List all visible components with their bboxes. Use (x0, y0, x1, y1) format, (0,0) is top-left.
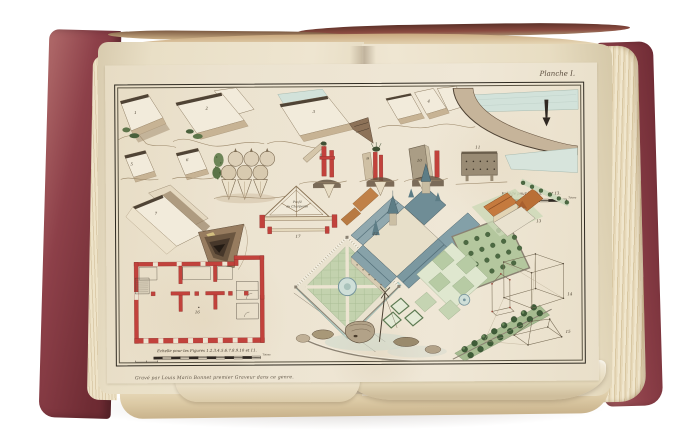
svg-text:4: 4 (426, 98, 430, 103)
svg-text:15: 15 (565, 328, 571, 333)
svg-text:Toises: Toises (262, 353, 271, 356)
svg-text:10: 10 (416, 157, 422, 162)
scale-bar-left: Echelle pour les Figures 1.2.3.4.5.6.7.8… (135, 347, 271, 363)
svg-text:Profil: Profil (292, 200, 302, 204)
svg-text:16: 16 (194, 309, 200, 314)
post-section-fig9 (359, 142, 398, 196)
dome-piles-fig7-group (212, 147, 285, 203)
terrain-section-fig1 (118, 94, 176, 148)
terrain-section-fig2 (172, 87, 264, 146)
svg-text:17: 17 (295, 233, 301, 238)
svg-text:de Charpente: de Charpente (286, 204, 308, 208)
svg-text:1: 1 (134, 110, 137, 115)
svg-text:2: 2 (204, 105, 208, 110)
svg-text:12: 12 (372, 231, 378, 236)
red-floor-plan (134, 255, 264, 343)
svg-text:11: 11 (475, 144, 480, 149)
engraver-credit-line: Gravé par Louis Marin Bonnet premier Gra… (135, 375, 294, 381)
svg-text:13: 13 (536, 218, 542, 223)
tree-lined-alley (452, 304, 551, 361)
book-photograph: Planche I. (0, 0, 700, 443)
svg-text:14: 14 (567, 291, 573, 296)
terrain-section-fig5 (120, 150, 158, 182)
plate-number-label: Planche I. (540, 70, 575, 78)
wall-elevation-fig11 (455, 151, 507, 184)
roof-truss-profile: Profil de Charpente (259, 186, 337, 234)
plate-artwork: Echelle pour les Fig. 12 et 13. Toises (118, 85, 582, 363)
terrain-section-fig3 (266, 88, 372, 148)
plate-border-frame: Echelle pour les Fig. 12 et 13. Toises (114, 82, 586, 367)
sluice-post-fig8 (298, 141, 346, 198)
terrain-section-fig6 (172, 148, 214, 180)
svg-text:Echelle pour les Figures 1.2.3: Echelle pour les Figures 1.2.3.4.5.6.7.8… (156, 347, 257, 353)
plate-border-inner-rule: Echelle pour les Fig. 12 et 13. Toises (117, 84, 583, 364)
engraved-plate-sheet: Planche I. (105, 63, 599, 384)
svg-text:Toises: Toises (568, 196, 577, 199)
